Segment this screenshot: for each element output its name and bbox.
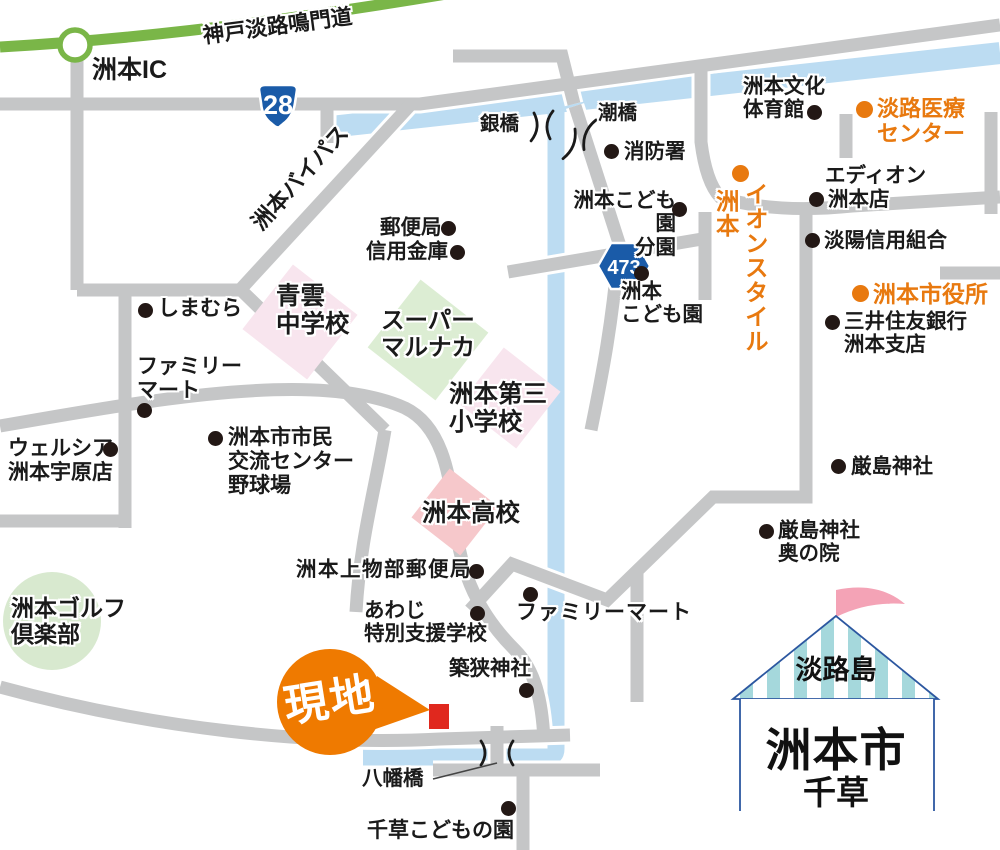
map-label-familymart-south: ファミリーマート [516,601,692,625]
map-label-kodomoen-bunen: 洲本こども園 分園 [566,189,676,259]
map-label-edion-line2: 洲本店 [828,188,890,211]
map-label-awaji-medical-center: 淡路医療 センター [877,96,965,146]
map-label-aeon-style-sumoto: 洲本 [712,189,739,238]
map-label-sumoto-ic: 洲本IC [92,56,167,85]
map-label-familymart-west: ファミリー マート [137,355,242,403]
poi-dot-kamimonobe-post [469,564,484,579]
poi-dot-shimamura [138,303,153,318]
poi-dot-edion-line2 [809,192,824,207]
map-label-yahatabashi-bridge: 八幡橋 [362,767,424,790]
poi-dot-chigusa-kodomonosono [501,801,516,816]
map-label-awaji-tokubetsu: あわじ 特別支援学校 [364,599,487,646]
map-label-shimin-koryu-center: 洲本市市民 交流センター 野球場 [228,426,354,498]
map-label-aeon-style: イオンスタイル [741,182,768,354]
access-map: 28 473 [0,0,1000,850]
map-label-edion-line1: エディオン [825,164,926,187]
interchange-icon [60,30,90,60]
map-label-shinyo-kinko: 信用金庫 [366,240,448,263]
poi-dot-shimin-koryu-center [208,431,223,446]
poi-dot-awaji-medical-center [856,101,873,118]
route-28-number: 28 [263,90,293,120]
map-label-kamimonobe-post: 洲本上物部郵便局 [296,558,472,581]
map-label-sumoto-koko: 洲本高校 [422,500,520,528]
map-label-ushiobashi-bridge: 潮橋 [598,102,637,124]
poi-dot-city-hall [852,285,869,302]
poi-dot-post-office [441,221,456,236]
map-label-city-hall: 洲本市役所 [873,281,988,307]
flag-icon [836,587,905,617]
poi-dot-itsukushima-jinja [831,459,846,474]
map-label-chigusa-kodomonosono: 千草こどもの園 [367,819,514,843]
map-label-shimamura: しまむら [158,297,242,321]
poi-dot-shinyo-kinko [450,245,465,260]
map-label-itsukushima-jinja: 厳島神社 [851,455,933,478]
poi-dot-familymart-west [137,403,152,418]
map-label-ginbashi-bridge: 銀橋 [480,113,519,135]
poi-dot-fire-station [604,144,619,159]
site-square-marker [429,704,449,729]
map-label-tanyo-shinyokumiai: 淡陽信用組合 [824,229,947,252]
poi-dot-tanyo-shinyokumiai [805,233,820,248]
title-card-island: 淡路島 [736,648,936,687]
poi-dot-itsukushima-okunoin [759,524,774,539]
map-label-smbc-sumoto: 三井住友銀行 洲本支店 [844,310,967,357]
map-label-post-office: 郵便局 [380,216,442,239]
map-label-seiun-chugakko: 青雲 中学校 [276,283,350,339]
title-card-district: 千草 [736,766,936,814]
poi-dot-familymart-south [523,587,538,602]
poi-dot-smbc-sumoto [825,315,840,330]
poi-dot-welcia-uehara [103,442,118,457]
poi-dot-awaji-tokubetsu [470,606,485,621]
poi-dot-aeon-style [732,165,749,182]
poi-dot-sumoto-kodomoen [634,266,649,281]
map-label-daisan-shogakko: 洲本第三 小学校 [449,381,547,437]
map-label-welcia-uehara: ウェルシア 洲本宇原店 [8,437,113,485]
map-label-itsukushima-okunoin: 厳島神社 奥の院 [778,519,860,566]
poi-dot-kodomoen-bunen [672,202,687,217]
map-label-fire-station: 消防署 [624,140,686,163]
map-label-sumoto-golf-club: 洲本ゴルフ 倶楽部 [11,595,126,647]
map-label-super-marunaka: スーパー マルナカ [381,307,475,361]
map-label-sumoto-kodomoen: 洲本 こども園 [621,280,703,327]
poi-dot-chikusa-jinja [519,683,534,698]
poi-dot-bunka-taiikukan [807,105,822,120]
map-label-chikusa-jinja: 築狭神社 [449,657,531,680]
route-28-badge: 28 [259,85,297,128]
